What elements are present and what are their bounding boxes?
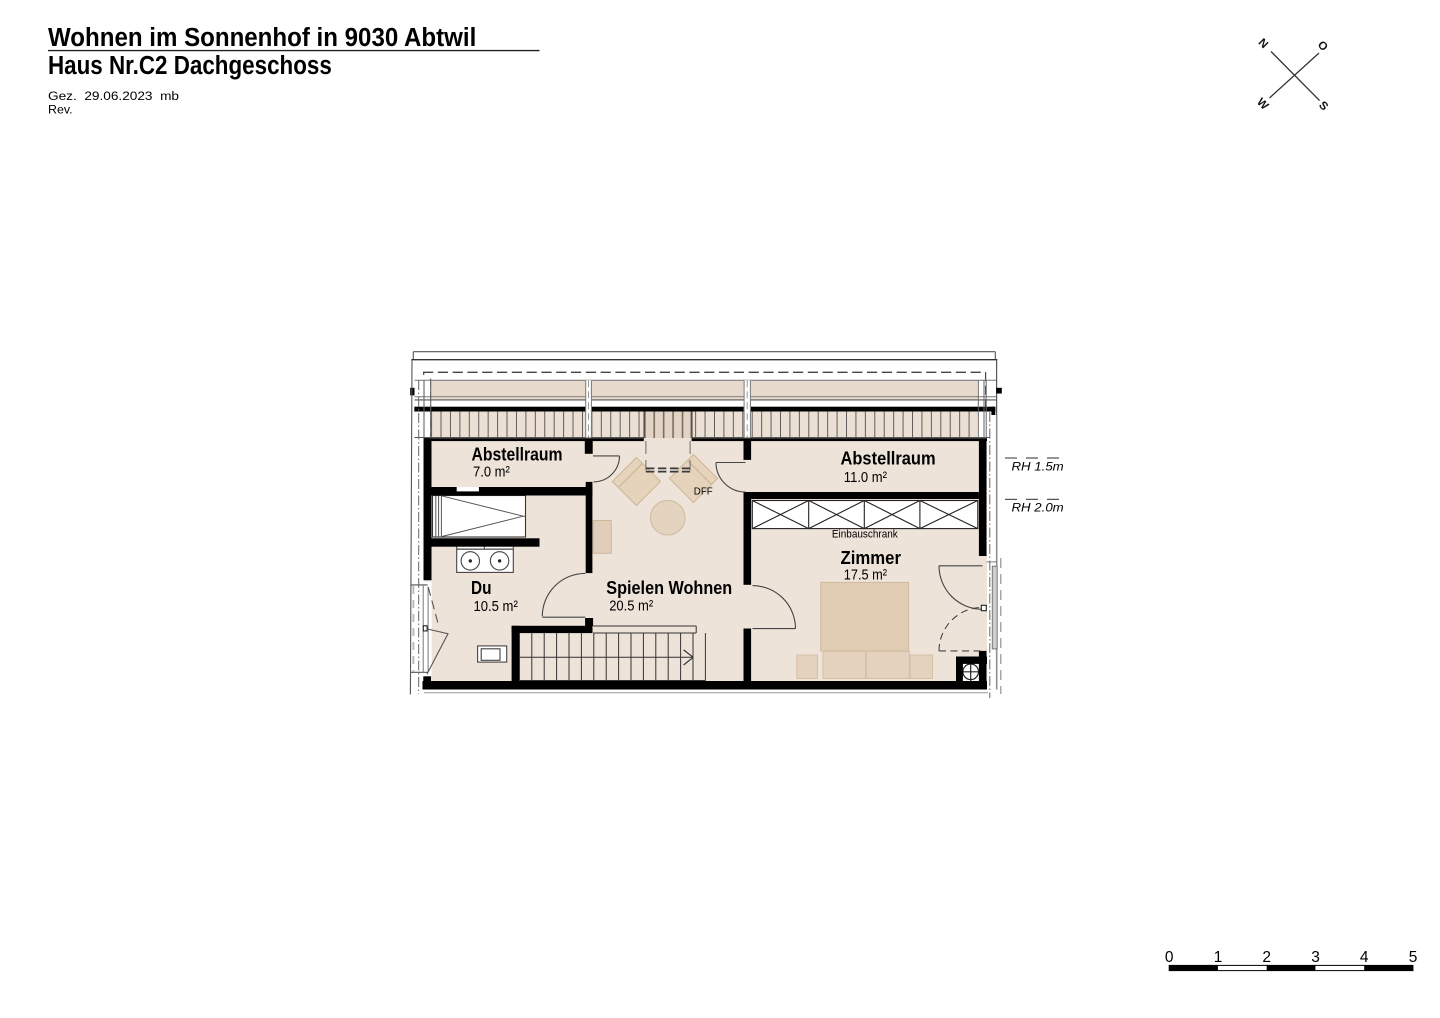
svg-text:S: S	[1316, 99, 1330, 113]
svg-text:Gez. 29.06.2023 mb: Gez. 29.06.2023 mb	[48, 89, 179, 103]
svg-text:7.0 m²: 7.0 m²	[473, 463, 510, 480]
svg-text:Zimmer: Zimmer	[841, 548, 902, 568]
svg-text:3: 3	[1311, 949, 1320, 966]
svg-text:5: 5	[1409, 949, 1418, 966]
svg-text:W: W	[1254, 96, 1270, 112]
svg-text:4: 4	[1360, 949, 1369, 966]
svg-text:11.0 m²: 11.0 m²	[844, 469, 887, 486]
svg-text:N: N	[1256, 37, 1270, 51]
svg-text:Spielen Wohnen: Spielen Wohnen	[606, 578, 732, 598]
svg-text:RH 2.0m: RH 2.0m	[1012, 501, 1064, 515]
svg-text:Abstellraum: Abstellraum	[841, 449, 936, 469]
svg-text:DFF: DFF	[694, 486, 713, 497]
svg-text:RH 1.5m: RH 1.5m	[1012, 459, 1064, 473]
svg-text:20.5 m²: 20.5 m²	[609, 597, 653, 614]
svg-text:Abstellraum: Abstellraum	[472, 445, 563, 465]
svg-text:Einbauschrank: Einbauschrank	[832, 529, 898, 541]
svg-text:10.5 m²: 10.5 m²	[474, 598, 518, 615]
svg-text:17.5 m²: 17.5 m²	[844, 566, 887, 583]
svg-text:2: 2	[1262, 949, 1271, 966]
svg-text:Wohnen im Sonnenhof in 9030 Ab: Wohnen im Sonnenhof in 9030 Abtwil	[48, 22, 476, 52]
svg-text:Du: Du	[471, 578, 492, 598]
svg-text:0: 0	[1165, 949, 1174, 966]
svg-text:Rev.: Rev.	[48, 103, 73, 117]
svg-text:O: O	[1315, 39, 1330, 54]
svg-text:Haus Nr.C2 Dachgeschoss: Haus Nr.C2 Dachgeschoss	[48, 50, 332, 80]
svg-text:1: 1	[1214, 949, 1223, 966]
